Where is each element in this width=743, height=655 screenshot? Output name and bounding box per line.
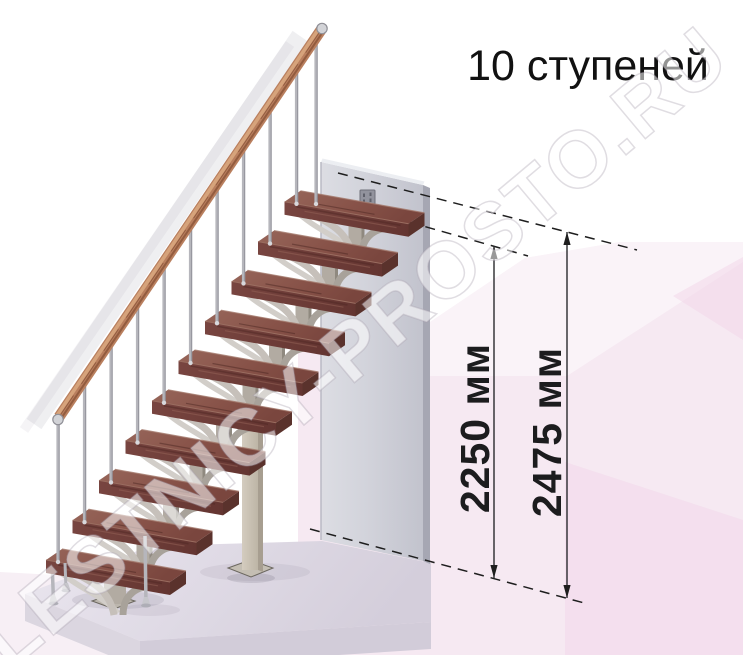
baluster: [215, 188, 219, 326]
plate-hole: [370, 193, 372, 197]
baluster-mount: [268, 241, 272, 245]
baluster: [241, 149, 245, 286]
baluster-mount: [314, 202, 318, 206]
baluster: [162, 266, 166, 405]
staircase-diagram: 2250 мм 2475 мм 10 ступеней LESTNICY-PRO…: [0, 0, 743, 655]
baluster: [109, 344, 113, 484]
dimension-label-2475: 2475 мм: [524, 347, 570, 517]
baluster: [188, 227, 192, 365]
baluster-mount: [241, 281, 245, 285]
dimension-label-2250: 2250 мм: [452, 343, 498, 513]
baluster: [294, 70, 298, 206]
baluster-mount: [162, 401, 166, 405]
plate-hole: [370, 199, 372, 203]
baluster-mount: [215, 321, 219, 325]
baluster-mount: [294, 202, 298, 206]
baluster: [268, 109, 272, 245]
handrail-end-cap-bottom: [53, 414, 63, 424]
plate-hole: [363, 194, 365, 198]
baluster-mount: [109, 480, 113, 484]
baluster: [314, 41, 318, 206]
baluster-mount: [188, 361, 192, 365]
baluster: [135, 305, 139, 445]
baluster: [82, 383, 86, 524]
handrail-end-cap-top: [317, 23, 327, 33]
leg-step2-foot: [141, 604, 151, 608]
diagram-canvas: 2250 мм 2475 мм 10 ступеней LESTNICY-PRO…: [0, 0, 743, 655]
baluster-mount: [135, 440, 139, 444]
